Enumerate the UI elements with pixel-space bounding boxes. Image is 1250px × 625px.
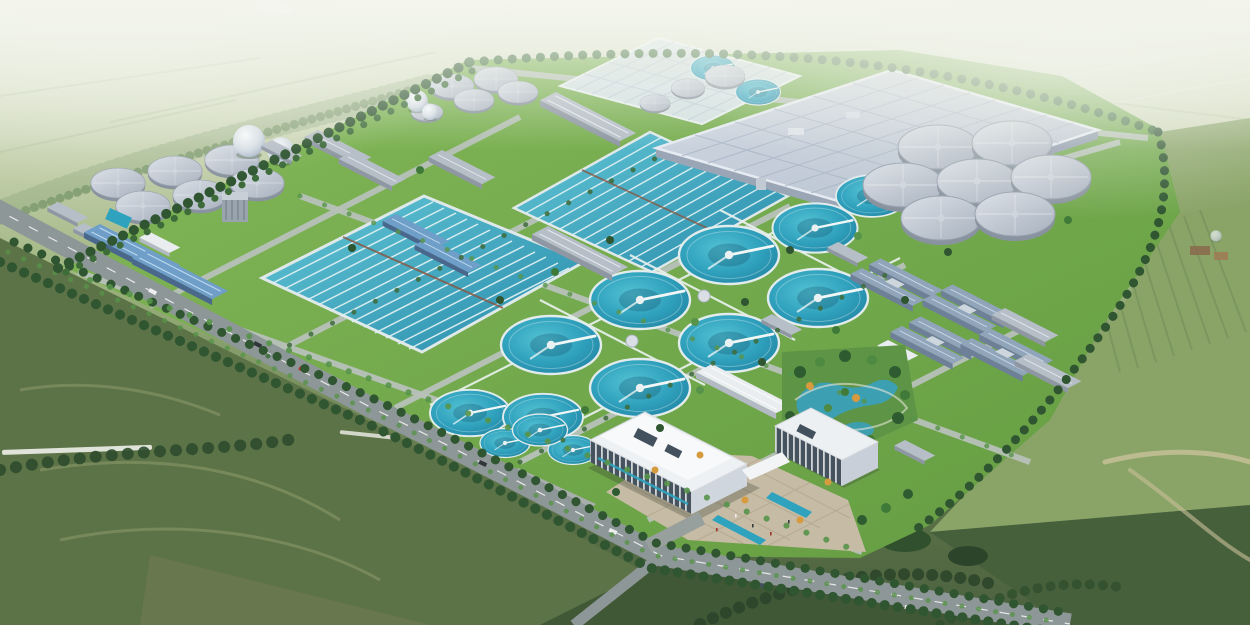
clarifier (773, 203, 858, 252)
scene-canvas (0, 0, 1250, 625)
clarifier (679, 226, 779, 284)
tall-building (222, 192, 248, 222)
aerial-rendering-wastewater-plant: Aerial architectural rendering of a larg… (0, 0, 1250, 625)
ornamental-pond (513, 414, 568, 446)
clarifier (501, 316, 601, 374)
junction-structure (626, 335, 638, 347)
junction-structure (698, 290, 710, 302)
clarifier (590, 359, 690, 417)
clarifier (590, 271, 690, 329)
